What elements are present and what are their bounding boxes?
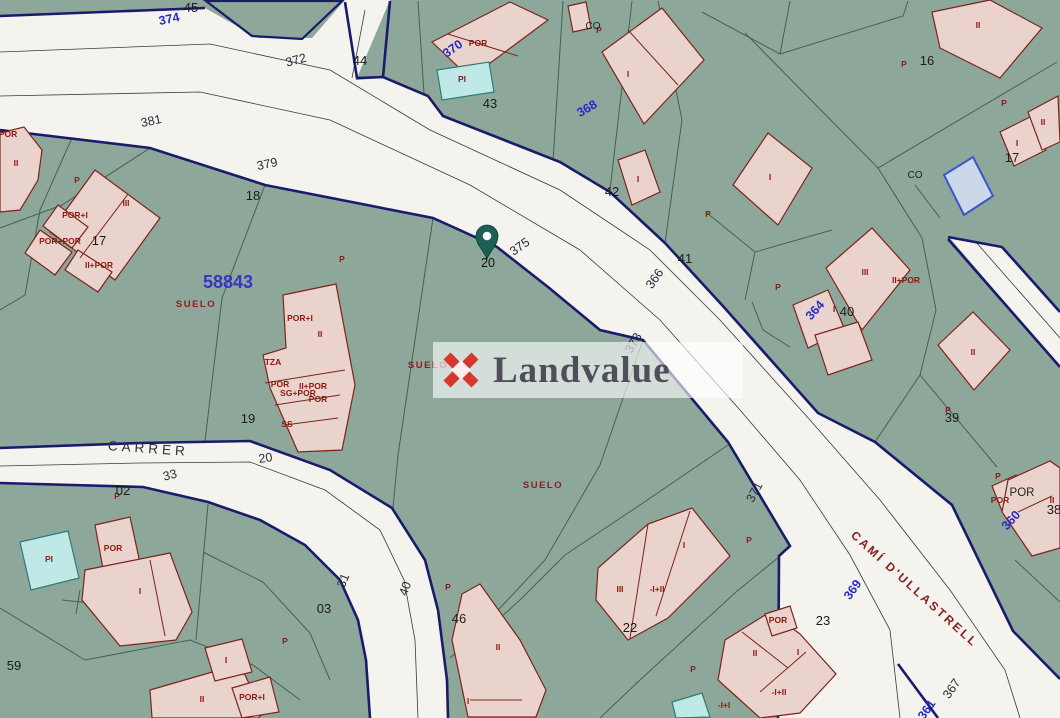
building-label: I [769, 172, 771, 182]
building-label: POR+POR [39, 236, 81, 246]
building-label: III [122, 198, 129, 208]
building-label: I [1016, 138, 1018, 148]
parcel-number: 46 [452, 611, 466, 626]
building-label: P [1001, 98, 1007, 108]
building-label: POR [309, 394, 327, 404]
parcel-number: 38 [1047, 502, 1060, 517]
building-label: P [746, 535, 752, 545]
building-label: POR+I [287, 313, 313, 323]
co-label: CO [908, 170, 923, 181]
building-label: -I+II [650, 584, 665, 594]
parcel-number: 17 [1005, 150, 1019, 165]
building-label: I [627, 69, 629, 79]
building-label: P [282, 636, 288, 646]
building-label: P [339, 254, 345, 264]
reference-number: 58843 [203, 272, 253, 292]
landvalue-watermark-text: Landvalue [493, 352, 671, 389]
parcel-number: 19 [241, 411, 255, 426]
building-label: P [690, 664, 696, 674]
co-label: CO [586, 21, 601, 32]
building-label: POR [991, 495, 1009, 505]
building-label: I [139, 586, 141, 596]
building-label: POR [0, 129, 17, 139]
building-label: P [775, 282, 781, 292]
building-label: POR [104, 543, 122, 553]
cadastral-map-canvas[interactable]: PORIIPIIIPOR+IPOR+PORII+PORPOR+IIITZAPOR… [0, 0, 1060, 718]
building-label: II+POR [892, 275, 920, 285]
parcel-number: 41 [678, 251, 692, 266]
landvalue-watermark: Landvalue [433, 342, 743, 398]
parcel-number: 59 [7, 658, 21, 673]
building-label: PI [458, 74, 466, 84]
por-label: POR [1010, 487, 1035, 499]
parcel-number: 42 [605, 184, 619, 199]
pin-parcel-number: 20 [481, 256, 495, 270]
building-label: SS [281, 419, 293, 429]
building-label: P [74, 175, 80, 185]
building-label: III [861, 267, 868, 277]
parcel-number: 22 [623, 620, 637, 635]
building-label: III [616, 584, 623, 594]
building-label: I [637, 174, 639, 184]
building-label: II [14, 158, 19, 168]
building-label: P [705, 209, 711, 219]
suelo-label: SUELO [523, 480, 563, 491]
parcel-number: 18 [246, 188, 260, 203]
parcel-number: 39 [945, 410, 959, 425]
building-label: I [683, 540, 685, 550]
map-pin-hole [483, 232, 492, 241]
road-number: 20 [258, 450, 274, 466]
building-label: II [318, 329, 323, 339]
building-label: I [833, 304, 835, 314]
building-label: II [1041, 117, 1046, 127]
building-label: I [797, 647, 799, 657]
building-label: II [200, 694, 205, 704]
parcel-number: 44 [353, 53, 367, 68]
parcel-number: 40 [840, 304, 854, 319]
building-label: I [225, 655, 227, 665]
building-label: -I+I [718, 700, 731, 710]
building-label: P [901, 59, 907, 69]
building-label: POR [769, 615, 787, 625]
parcel-number: 23 [816, 613, 830, 628]
parcel-number: 16 [920, 53, 934, 68]
building-label: TZA [265, 357, 282, 367]
parcel-number: 45 [184, 0, 198, 15]
parcel-number: 17 [92, 233, 106, 248]
building-label: II [753, 648, 758, 658]
parcel-number: 03 [317, 601, 331, 616]
parcel-number: 02 [116, 483, 130, 498]
building-label: I [467, 696, 469, 706]
building-label: II [496, 642, 501, 652]
building-label: II [976, 20, 981, 30]
parcel-number: 43 [483, 96, 497, 111]
building-label: -I+II [772, 687, 787, 697]
building-label: P [995, 471, 1001, 481]
building-label: P [445, 582, 451, 592]
suelo-label: SUELO [176, 299, 216, 310]
building-label: PI [45, 554, 53, 564]
building-label: POR [469, 38, 487, 48]
building-label: II+POR [85, 260, 113, 270]
building-label: POR+I [239, 692, 265, 702]
landvalue-logo-icon [439, 348, 483, 392]
building-label: POR+I [62, 210, 88, 220]
building-label: II [971, 347, 976, 357]
